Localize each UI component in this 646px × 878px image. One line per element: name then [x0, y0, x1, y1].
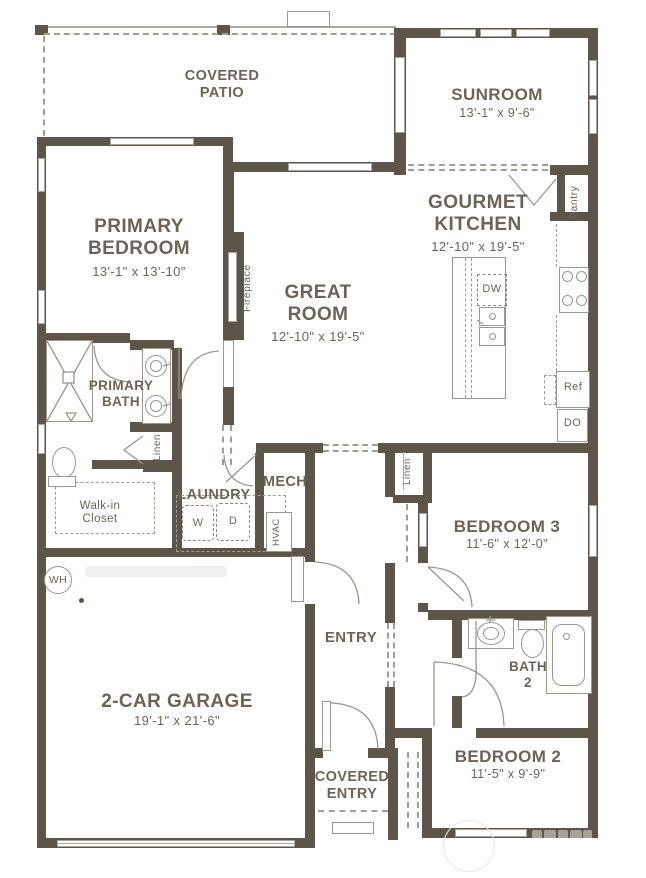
door-swing-arc — [181, 351, 219, 399]
door-leaf — [428, 567, 464, 601]
watermark-circle — [443, 820, 495, 872]
label-covered-patio: COVERED PATIO — [152, 68, 292, 102]
dims-great-room: 12'-10" x 19'-5" — [238, 329, 398, 344]
label-double-oven: DO — [557, 417, 588, 430]
label-refrigerator: Ref — [556, 381, 590, 394]
label-linen-hall: Linen — [402, 450, 413, 494]
label-bath-2: BATH 2 — [498, 659, 558, 690]
label-walk-in-closet: Walk-in Closet — [50, 500, 150, 527]
label-entry: ENTRY — [311, 629, 391, 646]
label-covered-entry: COVERED ENTRY — [302, 769, 402, 803]
label-bedroom-2: BEDROOM 2 — [418, 747, 598, 767]
label-gourmet-kitchen: GOURMET KITCHEN — [398, 192, 558, 236]
label-primary-bedroom: PRIMARY BEDROOM — [49, 216, 229, 260]
label-hvac: HVAC — [271, 515, 282, 550]
label-fireplace: Fireplace — [241, 253, 253, 323]
watermark-mark — [558, 830, 568, 839]
label-linen-bath: Linen — [152, 432, 163, 464]
label-garage: 2-CAR GARAGE — [57, 691, 297, 713]
dims-primary-bedroom: 13'-1" x 13'-10" — [49, 264, 229, 279]
label-dryer: D — [216, 515, 250, 528]
faucet — [477, 320, 483, 324]
dims-gourmet-kitchen: 12'-10" x 19'-5" — [398, 239, 558, 254]
watermark-mark — [532, 830, 542, 839]
label-great-room: GREAT ROOM — [238, 282, 398, 326]
linen-bifold-door — [124, 436, 143, 464]
watermark-mark — [570, 830, 582, 839]
label-primary-bath: PRIMARY BATH — [66, 378, 176, 409]
dims-bedroom-2: 11'-5" x 9'-9" — [418, 767, 598, 782]
door-swing-arc — [331, 703, 378, 749]
watermark-mark — [583, 830, 592, 839]
watermark-mark — [544, 830, 556, 839]
label-washer: W — [182, 517, 214, 530]
dims-sunroom: 13'-1" x 9'-6" — [417, 106, 577, 121]
label-pantry: Pantry — [568, 178, 580, 226]
label-water-heater: WH — [44, 574, 72, 586]
label-mech: MECH — [245, 474, 325, 491]
dims-bedroom-3: 11'-6" x 12'-0" — [417, 537, 597, 552]
label-sunroom: SUNROOM — [417, 85, 577, 105]
label-bedroom-3: BEDROOM 3 — [417, 517, 597, 537]
dims-garage: 19'-1" x 21'-6" — [57, 713, 297, 728]
door-swing-arc — [315, 562, 359, 604]
faucet — [486, 616, 495, 623]
door-swing-arc — [94, 346, 130, 382]
floor-plan: COVERED PATIO SUNROOM 13'-1" x 9'-6" PRI… — [0, 0, 646, 878]
label-dishwasher: DW — [477, 283, 507, 296]
shower-head — [66, 413, 76, 421]
